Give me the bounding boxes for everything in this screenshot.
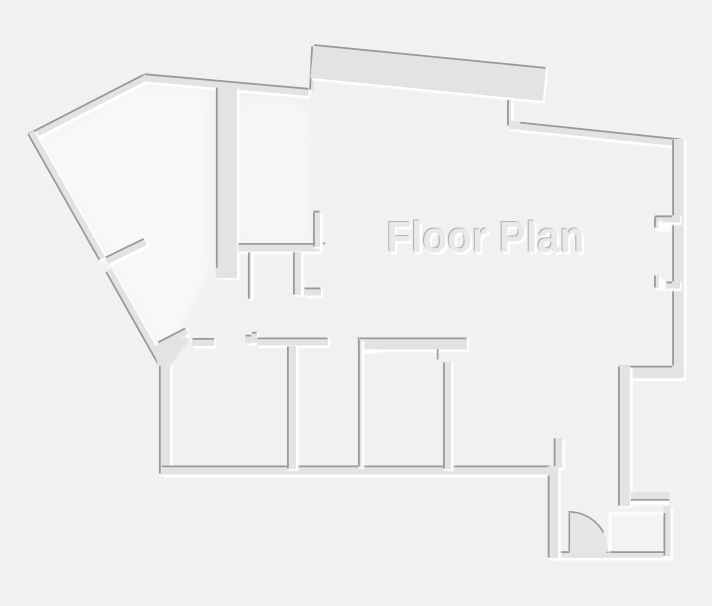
svg-text:Floor Plan: Floor Plan [387, 212, 585, 261]
